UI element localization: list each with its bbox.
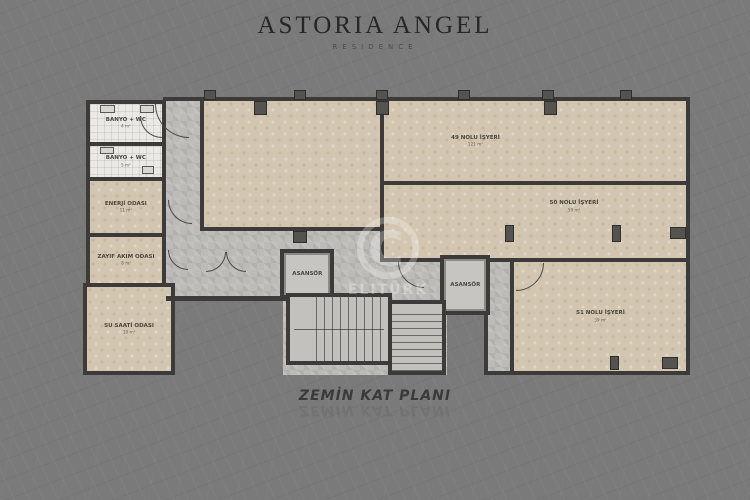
- stair-treads: [392, 312, 442, 371]
- room-low-current: ZAYIF AKIM ODASI 8 m²: [86, 233, 166, 287]
- room-office-49-floor: [205, 150, 379, 226]
- bath-fixture: [142, 166, 154, 174]
- bath-fixture: [100, 147, 114, 154]
- stair-rail: [294, 329, 384, 330]
- bath-fixture: [140, 105, 154, 113]
- staircase-1: [286, 293, 392, 365]
- room-area: 59 m²: [581, 318, 618, 323]
- column-stub: [542, 90, 554, 100]
- column: [612, 225, 621, 242]
- room-area: 121 m²: [456, 142, 493, 147]
- column: [505, 225, 514, 242]
- room-area: 4 m²: [111, 124, 142, 129]
- column: [376, 101, 389, 115]
- room-office-50: 50 NOLU İŞYERİ 59 m²: [380, 181, 690, 262]
- corridor-horizontal: [166, 228, 384, 300]
- room-bathroom-2: BANYO + WC 5 m²: [86, 142, 166, 181]
- column: [670, 227, 686, 239]
- room-area: 11 m²: [110, 208, 142, 213]
- room-area: 8 m²: [104, 261, 147, 266]
- room-area: 5 m²: [111, 163, 142, 168]
- column: [610, 356, 619, 370]
- wall: [166, 296, 288, 301]
- floor-caption-reflection: ZEMİN KAT PLANI: [0, 402, 750, 418]
- column-stub: [620, 90, 632, 100]
- room-name: ENERJİ ODASI: [105, 200, 147, 207]
- brand-subtitle: RESIDENCE: [0, 43, 750, 51]
- column: [254, 101, 267, 115]
- elevator-label: ASANSÖR: [450, 282, 480, 289]
- elevator-label: ASANSÖR: [292, 271, 322, 278]
- room-name: BANYO + WC: [106, 154, 146, 161]
- column: [662, 357, 678, 369]
- room-energy: ENERJİ ODASI 11 m²: [86, 177, 166, 237]
- column-stub: [204, 90, 216, 100]
- column: [293, 231, 307, 243]
- room-water-meter: SU SAATİ ODASI 10 m²: [83, 283, 175, 375]
- column-stub: [294, 90, 306, 100]
- brand-header: ASTORIA ANGEL RESIDENCE: [0, 12, 750, 51]
- room-area: 59 m²: [556, 208, 593, 213]
- room-name: 49 NOLU İŞYERİ: [451, 134, 500, 141]
- floor-caption-block: ZEMİN KAT PLANI ZEMİN KAT PLANI: [0, 388, 750, 418]
- room-area: 10 m²: [110, 330, 148, 335]
- bath-fixture: [100, 105, 115, 113]
- floor-plan-page: ASTORIA ANGEL RESIDENCE BANYO + WC 4 m² …: [0, 0, 750, 500]
- brand-title: ASTORIA ANGEL: [0, 12, 750, 40]
- column-stub: [458, 90, 470, 100]
- room-name: 50 NOLU İŞYERİ: [550, 199, 599, 206]
- column: [544, 101, 557, 115]
- elevator-2: ASANSÖR: [440, 255, 490, 315]
- room-name: ZAYIF AKIM ODASI: [97, 253, 154, 260]
- column-stub: [376, 90, 388, 100]
- room-name: SU SAATİ ODASI: [104, 322, 154, 329]
- elevator-1: ASANSÖR: [280, 249, 334, 299]
- staircase-2: [388, 300, 446, 375]
- wall: [163, 97, 690, 101]
- room-name: 51 NOLU İŞYERİ: [576, 309, 625, 316]
